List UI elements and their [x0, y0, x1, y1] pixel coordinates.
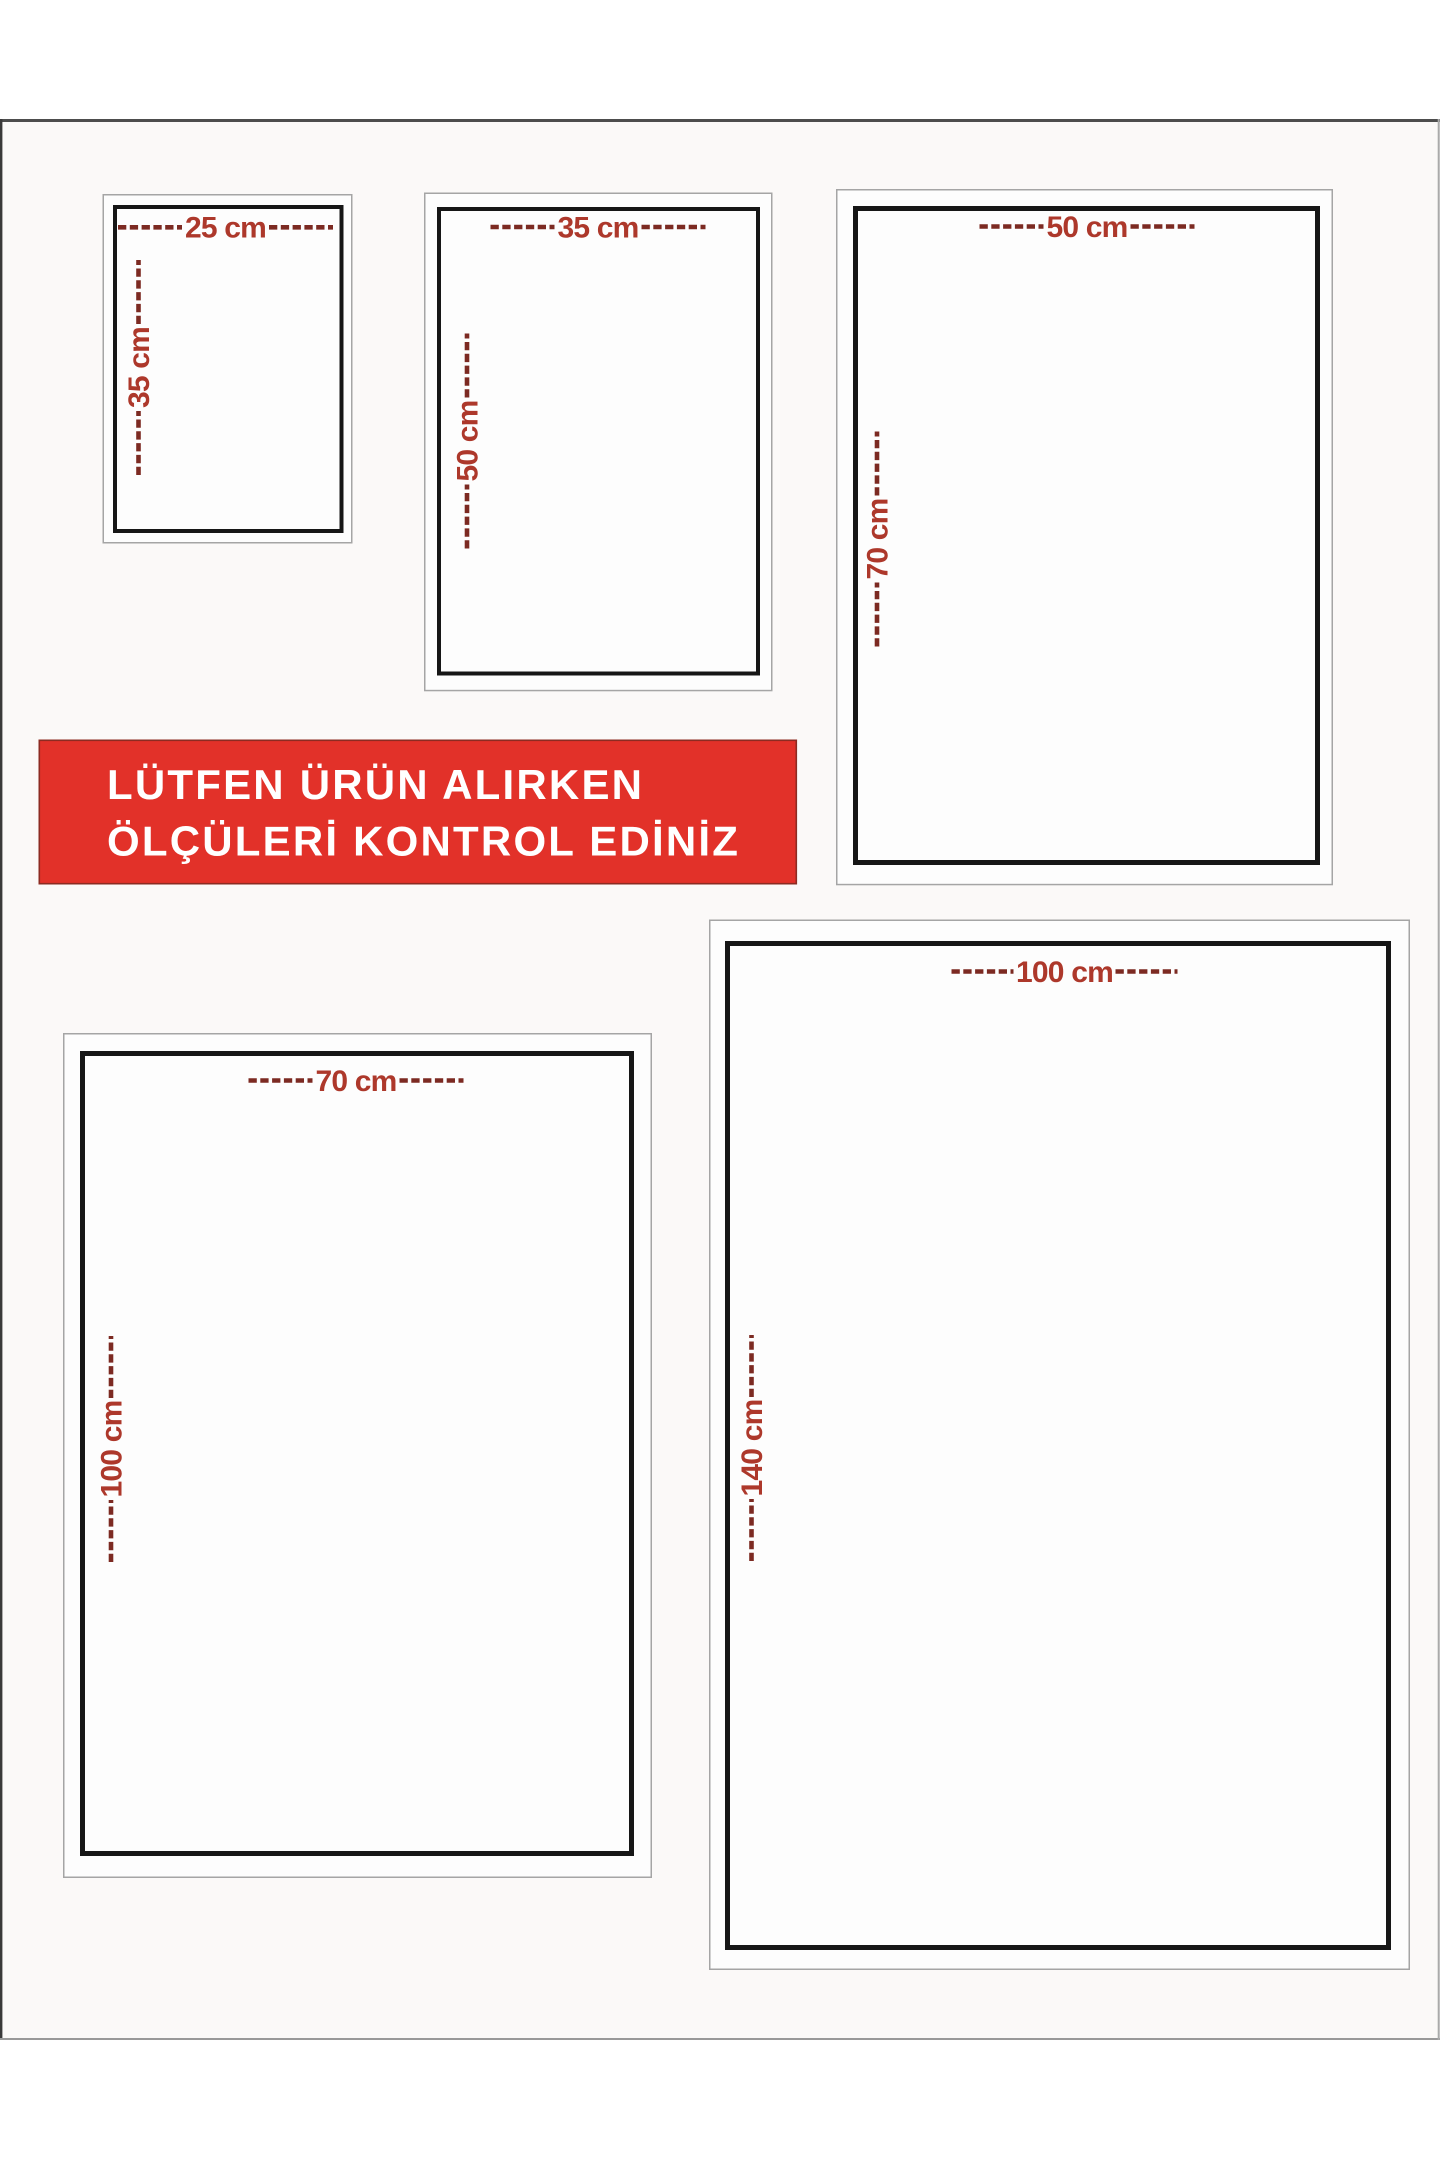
- svg-text:50 cm: 50 cm: [451, 400, 484, 481]
- svg-text:35 cm: 35 cm: [557, 211, 638, 244]
- svg-text:100 cm: 100 cm: [1016, 956, 1113, 989]
- svg-text:100 cm: 100 cm: [95, 1401, 128, 1498]
- svg-text:70 cm: 70 cm: [861, 498, 894, 579]
- svg-text:140 cm: 140 cm: [736, 1400, 769, 1497]
- svg-text:ÖLÇÜLERİ KONTROL EDİNİZ: ÖLÇÜLERİ KONTROL EDİNİZ: [107, 818, 740, 865]
- svg-text:70 cm: 70 cm: [315, 1065, 396, 1098]
- svg-text:LÜTFEN ÜRÜN ALIRKEN: LÜTFEN ÜRÜN ALIRKEN: [107, 761, 644, 808]
- svg-text:50 cm: 50 cm: [1046, 211, 1127, 244]
- svg-text:35 cm: 35 cm: [123, 327, 156, 408]
- svg-text:25 cm: 25 cm: [185, 212, 266, 245]
